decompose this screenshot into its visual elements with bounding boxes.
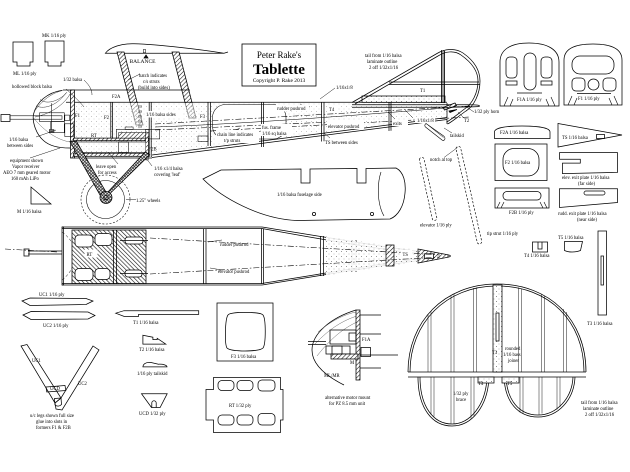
svg-text:RT: RT <box>87 253 93 258</box>
svg-text:F3: F3 <box>200 115 206 120</box>
svg-text:UC1 1/16 ply: UC1 1/16 ply <box>39 293 65 298</box>
svg-text:for PZ 8.5 mm unit: for PZ 8.5 mm unit <box>329 402 366 407</box>
svg-text:T2: T2 <box>464 119 470 124</box>
svg-text:alternative motor mount: alternative motor mount <box>325 396 371 401</box>
svg-text:1/32 balsa: 1/32 balsa <box>63 78 83 83</box>
svg-text:laminate outline: laminate outline <box>583 407 613 412</box>
svg-text:elevator pushrod: elevator pushrod <box>328 125 360 130</box>
svg-text:TS between sides: TS between sides <box>325 141 358 146</box>
svg-text:160 mAh LiPo: 160 mAh LiPo <box>11 177 40 182</box>
svg-text:BALANCE: BALANCE <box>130 59 157 65</box>
svg-text:rudd. exit plate 1/16 balsa: rudd. exit plate 1/16 balsa <box>558 212 607 217</box>
svg-text:c/s struts: c/s struts <box>143 80 160 85</box>
svg-text:u/c legs shown full size: u/c legs shown full size <box>30 414 74 419</box>
svg-text:F1 1/16 ply: F1 1/16 ply <box>578 97 600 102</box>
svg-text:1/32 ply: 1/32 ply <box>453 392 469 397</box>
svg-text:TS: TS <box>403 253 409 258</box>
svg-text:2 off 1/32x1/16: 2 off 1/32x1/16 <box>585 413 615 418</box>
svg-text:MK 1/16 ply: MK 1/16 ply <box>42 34 67 39</box>
svg-text:1/16 balsa: 1/16 balsa <box>9 138 29 143</box>
svg-text:rounded: rounded <box>505 347 521 352</box>
svg-text:F2: F2 <box>104 116 110 121</box>
svg-text:brace: brace <box>456 398 466 403</box>
svg-text:1/16 bass: 1/16 bass <box>503 353 521 358</box>
svg-text:T3: T3 <box>492 351 498 356</box>
svg-text:rudder pushrod: rudder pushrod <box>220 243 249 248</box>
svg-text:M 1/16 balsa: M 1/16 balsa <box>17 210 42 215</box>
svg-text:F2 1/16 balsa: F2 1/16 balsa <box>505 161 531 166</box>
svg-text:(near side): (near side) <box>577 218 597 223</box>
svg-text:T4: T4 <box>329 108 335 113</box>
svg-text:UCD: UCD <box>50 387 61 392</box>
svg-text:UC2 1/16 ply: UC2 1/16 ply <box>43 324 69 329</box>
svg-text:tail from 1/16 balsa: tail from 1/16 balsa <box>365 54 402 59</box>
svg-text:T1: T1 <box>420 89 426 94</box>
svg-text:notch at top: notch at top <box>430 158 453 163</box>
svg-text:T4: T4 <box>478 382 484 387</box>
svg-text:F1A: F1A <box>362 338 371 343</box>
svg-text:1/16 sq balsa: 1/16 sq balsa <box>262 132 287 137</box>
svg-text:AEO 7 mm geared motor: AEO 7 mm geared motor <box>3 171 51 176</box>
svg-text:1/16 ply tailskid: 1/16 ply tailskid <box>137 372 168 377</box>
svg-text:2 off 1/32x1/16: 2 off 1/32x1/16 <box>369 66 399 71</box>
svg-text:(build into sides): (build into sides) <box>138 86 170 91</box>
svg-text:UCD 1/32 ply: UCD 1/32 ply <box>139 412 166 417</box>
svg-text:hatch indicates: hatch indicates <box>139 74 167 79</box>
svg-text:covering 'leaf': covering 'leaf' <box>154 173 180 178</box>
svg-text:F2B 1/16 ply: F2B 1/16 ply <box>509 211 534 216</box>
svg-text:F3 1/16 balsa: F3 1/16 balsa <box>231 355 257 360</box>
svg-text:tailskid: tailskid <box>450 134 464 139</box>
svg-text:tip strut 1/16 ply: tip strut 1/16 ply <box>487 232 519 237</box>
svg-text:T2 1/16 balsa: T2 1/16 balsa <box>139 348 165 353</box>
svg-text:1/16x1/8: 1/16x1/8 <box>417 119 434 124</box>
svg-text:F2A 1/16 balsa: F2A 1/16 balsa <box>500 131 529 136</box>
svg-text:Peter Rake's: Peter Rake's <box>257 50 302 60</box>
svg-text:joiner: joiner <box>507 359 519 364</box>
svg-text:tail from 1/16 balsa: tail from 1/16 balsa <box>581 401 618 406</box>
svg-text:chain line indicates: chain line indicates <box>217 133 253 138</box>
svg-text:elevator pushrod: elevator pushrod <box>218 270 250 275</box>
svg-text:F2A: F2A <box>112 95 121 100</box>
svg-text:UC2: UC2 <box>78 382 88 387</box>
svg-text:1/16 x1/4 balsa: 1/16 x1/4 balsa <box>154 167 184 172</box>
svg-text:exits: exits <box>393 122 402 127</box>
svg-text:TS 1/16 balsa: TS 1/16 balsa <box>562 136 589 141</box>
svg-text:elevator 1/16 ply: elevator 1/16 ply <box>420 224 452 229</box>
svg-text:Tablette: Tablette <box>253 62 305 78</box>
svg-text:ML 1/16 ply: ML 1/16 ply <box>13 72 37 77</box>
svg-text:for access: for access <box>98 171 117 176</box>
svg-text:RT 1/32 ply: RT 1/32 ply <box>229 404 252 409</box>
svg-text:T3 1/16 balsa: T3 1/16 balsa <box>587 322 613 327</box>
svg-text:RT: RT <box>91 134 97 139</box>
svg-text:F1A 1/16 ply: F1A 1/16 ply <box>517 98 542 103</box>
svg-text:(far side): (far side) <box>578 182 595 187</box>
svg-text:between sides: between sides <box>7 144 33 149</box>
svg-text:Copyright P. Rake 2013: Copyright P. Rake 2013 <box>253 78 306 84</box>
svg-text:formers F1 & F2B: formers F1 & F2B <box>36 426 71 431</box>
svg-text:hollowed block balsa: hollowed block balsa <box>12 85 53 90</box>
svg-text:fus. frame: fus. frame <box>262 126 281 131</box>
svg-text:F1: F1 <box>75 114 81 119</box>
svg-text:T5 1/16 balsa: T5 1/16 balsa <box>558 236 584 241</box>
svg-text:T1 1/16 balsa: T1 1/16 balsa <box>133 321 159 326</box>
svg-text:1/32 ply horn: 1/32 ply horn <box>474 110 500 115</box>
svg-text:laminate outline: laminate outline <box>367 60 397 65</box>
svg-text:1/16x1/8: 1/16x1/8 <box>336 86 353 91</box>
svg-text:rudder pushrod: rudder pushrod <box>277 107 306 112</box>
svg-text:F2B: F2B <box>149 148 157 153</box>
svg-text:elev. exit plate 1/16 balsa: elev. exit plate 1/16 balsa <box>562 176 610 181</box>
svg-text:t/p struts: t/p struts <box>224 139 240 144</box>
svg-text:Vapor receiver: Vapor receiver <box>12 165 40 170</box>
svg-text:1.25" wheels: 1.25" wheels <box>136 199 160 204</box>
svg-text:T5: T5 <box>507 382 513 387</box>
svg-text:ML/MR: ML/MR <box>324 374 341 379</box>
svg-text:1/16 balsa sides: 1/16 balsa sides <box>146 113 176 118</box>
svg-text:1/16 balsa fuselage side: 1/16 balsa fuselage side <box>277 193 322 198</box>
svg-text:leave open: leave open <box>96 165 117 170</box>
svg-text:UC1: UC1 <box>32 359 42 364</box>
svg-text:equipment shown: equipment shown <box>10 159 44 164</box>
svg-text:glue into slots in: glue into slots in <box>36 420 68 425</box>
svg-text:T4 1/16 balsa: T4 1/16 balsa <box>524 254 550 259</box>
